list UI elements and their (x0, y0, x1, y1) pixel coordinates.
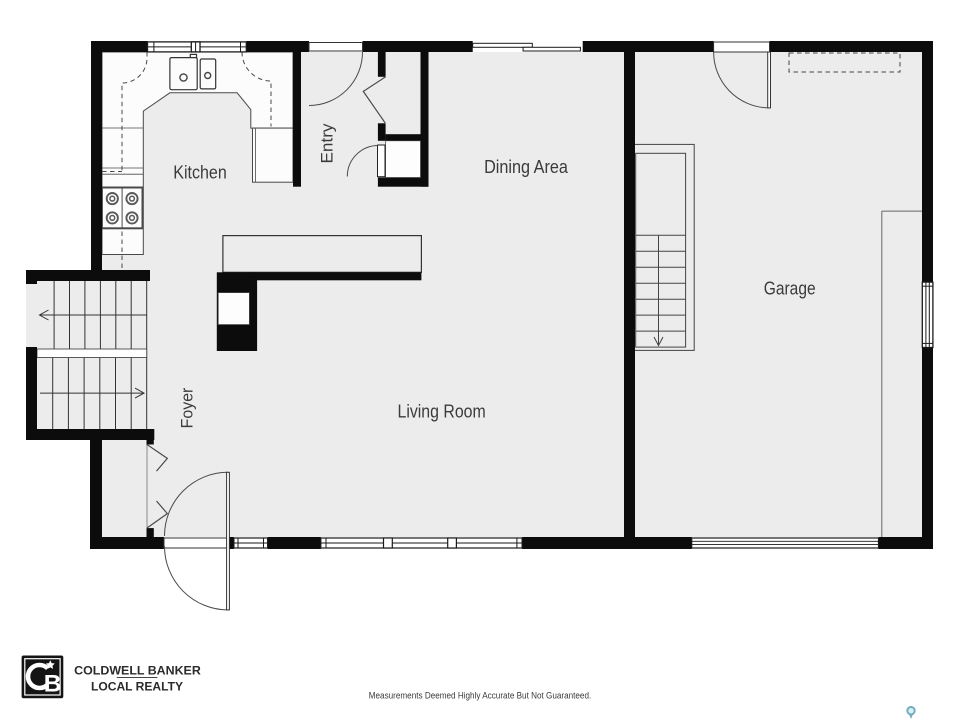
svg-text:Measurements Deemed Highly Acc: Measurements Deemed Highly Accurate But … (369, 691, 592, 702)
svg-text:Garage: Garage (764, 277, 816, 298)
svg-text:Entry: Entry (318, 123, 337, 163)
svg-text:Kitchen: Kitchen (173, 162, 227, 183)
svg-text:COLDWELL BANKER: COLDWELL BANKER (74, 664, 201, 678)
svg-text:Dining Area: Dining Area (484, 156, 568, 177)
svg-text:LOCAL REALTY: LOCAL REALTY (91, 680, 184, 694)
svg-text:Foyer: Foyer (178, 387, 197, 428)
svg-text:Living Room: Living Room (398, 401, 486, 422)
svg-text:B: B (44, 671, 62, 698)
